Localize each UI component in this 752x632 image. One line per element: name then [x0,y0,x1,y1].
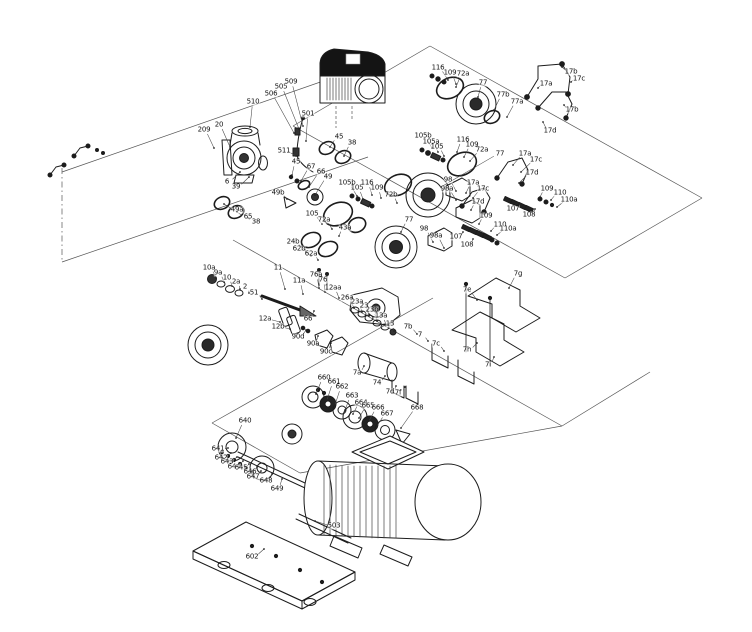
part-label-668: 668 [411,405,424,412]
part-label-12aa: 12aa [325,285,342,292]
part-label-39: 39 [232,184,241,191]
part-label-72a: 72a [318,217,331,224]
part-label-2: 2 [243,284,247,291]
part-label-7g: 7g [514,271,523,278]
part-label-7f: 7f [395,390,402,397]
part-labels-layer: 2092051050650550950151163949a65384567664… [0,0,752,632]
part-label-98: 98 [420,226,429,233]
part-label-72a: 72a [457,71,470,78]
part-label-501: 501 [302,111,315,118]
part-label-116: 116 [432,65,445,72]
part-label-72b: 72b [385,192,398,199]
part-label-10: 10 [223,275,232,282]
part-label-76: 76 [319,277,328,284]
part-label-11: 11 [274,265,283,272]
part-label-66: 66 [304,316,313,323]
part-label-108: 108 [461,242,474,249]
part-label-7: 7 [418,332,422,339]
part-label-105: 105 [306,211,319,218]
part-label-109: 109 [371,185,384,192]
part-label-7b: 7b [404,324,413,331]
part-label-641: 641 [212,446,225,453]
part-label-647: 647 [247,474,260,481]
part-label-7a: 7a [353,370,361,377]
part-label-109: 109 [444,70,457,77]
part-label-108: 108 [523,212,536,219]
part-label-12a: 12a [259,316,272,323]
part-label-13a: 13a [375,313,388,320]
part-label-667: 667 [381,411,394,418]
part-label-640: 640 [239,418,252,425]
part-label-602: 602 [246,554,259,561]
part-label-107: 107 [450,234,463,241]
part-label-98a: 98a [441,186,454,193]
part-label-38: 38 [348,140,357,147]
part-label-17a: 17a [540,81,553,88]
part-label-90d: 90d [292,334,305,341]
part-label-12b: 12b [272,324,285,331]
part-label-110a: 110a [561,197,578,204]
part-label-109: 109 [480,213,493,220]
part-label-77: 77 [479,80,488,87]
part-label-77b: 77b [497,92,510,99]
part-label-74: 74 [373,380,382,387]
exploded-diagram: 2092051050650550950151163949a65384567664… [0,0,752,632]
part-label-7h: 7h [463,347,472,354]
part-label-17c: 17c [573,76,585,83]
part-label-49a: 49a [231,207,244,214]
part-label-98a: 98a [430,233,443,240]
part-label-7d: 7d [386,389,395,396]
part-label-7e: 7e [463,287,471,294]
part-label-2a: 2a [232,279,240,286]
part-label-17d: 17d [472,199,485,206]
part-label-9a: 9a [214,270,222,277]
part-label-38: 38 [252,219,261,226]
part-label-45: 45 [292,159,301,166]
part-label-62b: 62b [293,246,306,253]
part-label-72a: 72a [476,147,489,154]
part-label-503: 503 [328,523,341,530]
part-label-17d: 17d [526,170,539,177]
part-label-6: 6 [225,179,229,186]
part-label-662: 662 [336,384,349,391]
part-label-17c: 17c [477,186,489,193]
part-label-17d: 17d [544,128,557,135]
part-label-511: 511 [278,148,291,155]
part-label-43a: 43a [339,225,352,232]
part-label-90a: 90a [307,341,320,348]
part-label-649: 649 [271,486,284,493]
part-label-648: 648 [260,478,273,485]
part-label-510: 510 [247,99,260,106]
part-label-49b: 49b [272,190,285,197]
part-label-51: 51 [250,290,259,297]
part-label-45: 45 [335,134,344,141]
part-label-209: 209 [198,127,211,134]
part-label-7i: 7i [485,362,491,369]
part-label-77: 77 [496,151,505,158]
part-label-109: 109 [541,186,554,193]
part-label-509: 509 [285,79,298,86]
part-label-77: 77 [405,217,414,224]
part-label-20: 20 [215,122,224,129]
part-label-105: 105 [431,144,444,151]
part-label-7c: 7c [432,341,440,348]
part-label-67: 67 [307,164,316,171]
part-label-98: 98 [444,177,453,184]
part-label-13: 13 [386,321,395,328]
part-label-49: 49 [324,174,333,181]
part-label-62a: 62a [305,251,318,258]
part-label-90c: 90c [320,349,332,356]
part-label-11a: 11a [293,278,306,285]
part-label-17c: 17c [530,157,542,164]
part-label-506: 506 [265,91,278,98]
part-label-107: 107 [507,206,520,213]
part-label-110a: 110a [500,226,517,233]
part-label-17b: 17b [566,107,579,114]
part-label-77a: 77a [511,99,524,106]
